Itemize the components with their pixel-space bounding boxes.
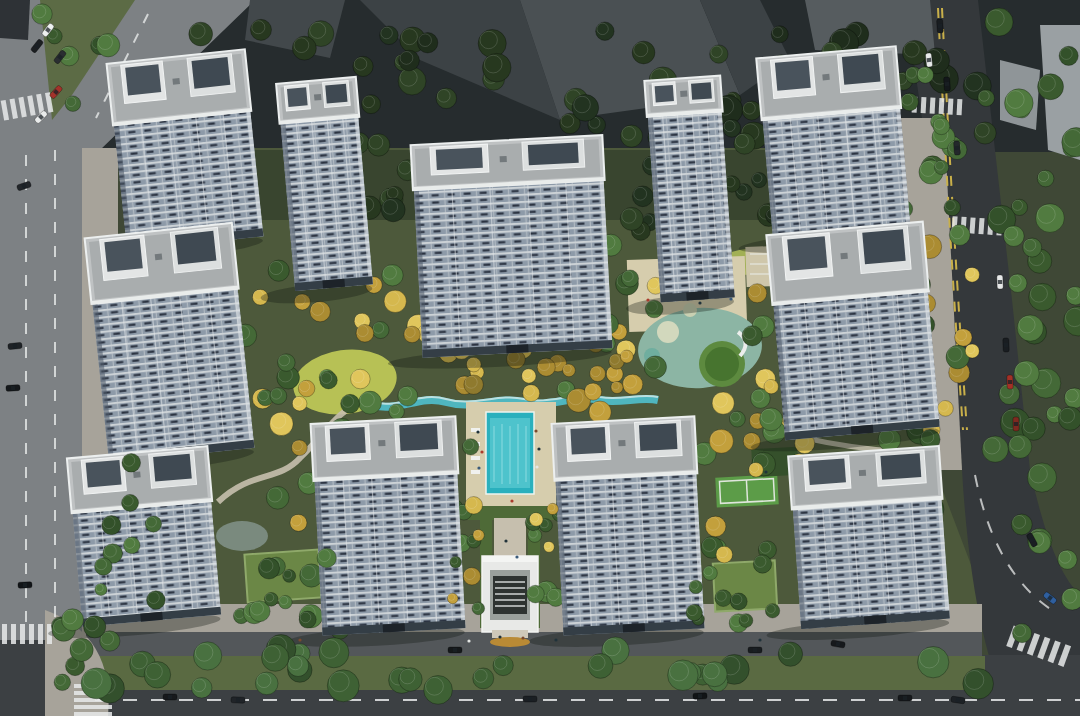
tree-crown-highlight: [634, 43, 648, 57]
tree-crown-highlight: [760, 542, 771, 553]
tree-crown-highlight: [528, 586, 539, 597]
car-windshield: [13, 344, 17, 349]
person-dot: [646, 298, 649, 301]
car: [1007, 375, 1013, 389]
tree-crown-highlight: [381, 27, 393, 39]
tree-crown-highlight: [648, 278, 658, 288]
roof-unit-west-glass: [655, 85, 674, 102]
car: [937, 19, 944, 33]
tower-facade: [92, 287, 254, 463]
tree-crown-highlight: [146, 663, 162, 679]
tree-crown-highlight: [622, 126, 636, 140]
tree-crown-highlight: [258, 391, 268, 401]
tree-crown-highlight: [750, 463, 759, 472]
roof-unit-east-glass: [880, 453, 921, 480]
car-windshield: [998, 280, 1003, 284]
tree-crown-highlight: [265, 593, 273, 601]
tree-crown-highlight: [310, 22, 326, 38]
tree-crown-highlight: [634, 187, 647, 200]
pool-lounger-4: [471, 470, 480, 474]
tree-crown-highlight: [1037, 206, 1055, 224]
car: [8, 342, 23, 349]
tree-crown-highlight: [755, 556, 766, 567]
tree-crown-highlight: [622, 209, 636, 223]
roof-unit-east-glass: [399, 423, 438, 451]
car: [6, 385, 20, 392]
tower-facade: [773, 289, 939, 440]
car-windshield: [1008, 380, 1013, 384]
tower-entrance: [623, 623, 645, 632]
tree-crown-highlight: [400, 51, 413, 64]
tree-crown-highlight: [687, 605, 697, 615]
tree-crown-highlight: [464, 569, 475, 580]
tree-crown-highlight: [257, 674, 271, 688]
tree-crown-highlight: [387, 187, 398, 198]
tree-crown-highlight: [363, 96, 375, 108]
tree-crown-highlight: [1064, 129, 1080, 147]
tree-crown-highlight: [548, 589, 559, 600]
tree-crown-highlight: [717, 547, 727, 557]
tree-crown-highlight: [300, 612, 311, 623]
tree-crown-highlight: [96, 584, 103, 591]
tree-crown-highlight: [103, 517, 115, 529]
tree-crown-highlight: [1065, 308, 1080, 326]
tree-crown-highlight: [294, 38, 309, 53]
tree-crown-highlight: [251, 602, 264, 615]
tree-crown-highlight: [548, 504, 555, 511]
tree-crown-highlight: [280, 596, 288, 604]
tree-crown-highlight: [293, 397, 302, 406]
tree-crown-highlight: [956, 330, 967, 341]
tree-crown-highlight: [71, 640, 85, 654]
tree-crown-highlight: [544, 542, 551, 549]
tree-crown-highlight: [342, 396, 354, 408]
tree-crown-highlight: [260, 559, 273, 572]
tree-crown-highlight: [301, 565, 315, 579]
tree-crown-highlight: [714, 394, 728, 408]
tree-crown-highlight: [597, 23, 608, 34]
roof-vent: [822, 74, 829, 81]
tree-crown-highlight: [1048, 407, 1058, 417]
tree-crown-highlight: [646, 357, 660, 371]
car: [523, 696, 537, 702]
tree-crown-highlight: [466, 498, 477, 509]
tree-crown-highlight: [574, 96, 591, 113]
tower-entrance: [686, 291, 709, 301]
car-windshield: [1014, 422, 1018, 426]
roof-vent: [618, 440, 625, 446]
tree-crown-highlight: [464, 440, 474, 450]
tree-crown-highlight: [975, 123, 989, 137]
car: [898, 695, 912, 701]
tree-crown-highlight: [352, 371, 364, 383]
tree-crown-highlight: [1066, 389, 1079, 402]
tree-crown-highlight: [735, 134, 748, 147]
tree-crown-highlight: [590, 402, 604, 416]
roof-unit-east-glass: [153, 454, 192, 482]
crosswalk-stripe: [11, 624, 16, 644]
tree-crown-highlight: [357, 326, 368, 337]
car-windshield: [528, 697, 532, 701]
roof-unit-east-glass: [192, 57, 231, 89]
tree-crown-highlight: [966, 268, 975, 277]
tree-crown-highlight: [494, 657, 507, 670]
tree-crown-highlight: [1038, 171, 1048, 181]
roof-unit-east-glass: [175, 231, 216, 265]
tree-crown-highlight: [354, 58, 367, 71]
tree-crown-highlight: [902, 94, 913, 105]
tree-crown-highlight: [123, 455, 135, 467]
tree-crown-highlight: [1039, 75, 1055, 91]
tree-crown-highlight: [373, 323, 384, 334]
tree-crown-highlight: [289, 657, 302, 670]
car-windshield: [955, 146, 960, 150]
roof-unit-west-glass: [787, 236, 827, 271]
tree-crown-highlight: [321, 373, 332, 384]
tree-crown-highlight: [989, 207, 1007, 225]
tree-crown-highlight: [690, 581, 698, 589]
car-windshield: [453, 648, 457, 652]
roof-unit-west-glass: [808, 459, 846, 485]
car: [748, 647, 762, 653]
tree-crown-highlight: [33, 5, 46, 18]
person-dot: [476, 430, 479, 433]
roof-unit-east-glass: [842, 54, 881, 85]
tower-facade: [762, 106, 910, 242]
car: [944, 77, 951, 91]
car-windshield: [753, 648, 757, 652]
car-windshield: [836, 641, 841, 646]
tree-crown-highlight: [1060, 48, 1072, 60]
crosswalk-stripe: [74, 705, 112, 709]
tree-crown-highlight: [451, 557, 458, 564]
person-dot: [510, 499, 513, 502]
tree-crown-highlight: [1029, 465, 1047, 483]
tree-crown-highlight: [621, 351, 629, 359]
tree-crown-highlight: [98, 35, 112, 49]
tree-crown-highlight: [524, 386, 535, 397]
tree-crown-highlight: [252, 21, 265, 34]
person-dot: [480, 450, 483, 453]
tree-crown-highlight: [234, 609, 244, 619]
tree-crown-highlight: [590, 655, 605, 670]
tree-crown-highlight: [473, 603, 481, 611]
tree-crown-highlight: [148, 592, 160, 604]
tree-crown-highlight: [939, 402, 949, 412]
car-windshield: [945, 82, 950, 86]
tree-crown-highlight: [1006, 91, 1024, 109]
car: [693, 693, 707, 699]
tree-crown-highlight: [400, 69, 417, 86]
tree-crown-highlight: [945, 200, 955, 210]
roof-unit-east-glass: [691, 82, 712, 100]
tree-crown-highlight: [704, 567, 713, 576]
person-dot: [764, 470, 767, 473]
tree-crown-highlight: [948, 347, 963, 362]
roof-unit-east-glass: [862, 229, 905, 264]
tree-crown-highlight: [624, 376, 637, 389]
tree-crown-highlight: [269, 261, 282, 274]
car-windshield: [956, 698, 961, 703]
car: [954, 141, 961, 155]
tower-entrance: [506, 344, 528, 353]
tree-crown-highlight: [965, 670, 984, 689]
tree-crown-highlight: [383, 266, 396, 279]
tree-crown-highlight: [55, 675, 65, 685]
tree-crown-highlight: [1060, 408, 1075, 423]
tree-crown-highlight: [279, 355, 290, 366]
tree-crown-highlight: [1030, 285, 1047, 302]
person-dot: [467, 639, 470, 642]
roof-vent: [500, 156, 507, 162]
tree-crown-highlight: [979, 91, 989, 101]
tree-crown-highlight: [743, 327, 756, 340]
tower-facade: [314, 471, 465, 635]
tree-crown-highlight: [1014, 625, 1026, 637]
person-dot: [498, 635, 501, 638]
tree-crown-highlight: [724, 121, 735, 132]
tree-crown-highlight: [104, 545, 116, 557]
tree-crown-highlight: [146, 517, 156, 527]
tree-crown-highlight: [766, 605, 775, 614]
tree-crown-highlight: [293, 441, 303, 451]
roof-unit-east-glass: [528, 142, 579, 165]
tree-crown-highlight: [474, 669, 487, 682]
tree-crown-highlight: [749, 285, 761, 297]
tree-crown-highlight: [670, 662, 689, 681]
pond: [216, 521, 268, 551]
tree-crown-highlight: [63, 610, 77, 624]
tree-crown-highlight: [1024, 239, 1036, 251]
person-dot: [758, 638, 761, 641]
person-dot: [537, 447, 540, 450]
tree-crown-highlight: [1010, 275, 1021, 286]
person-dot: [554, 638, 557, 641]
crosswalk-stripe: [29, 624, 34, 644]
roof-vent: [859, 470, 866, 476]
tree-crown-highlight: [744, 434, 755, 445]
tree-crown-highlight: [268, 488, 282, 502]
tree-crown-highlight: [951, 226, 964, 239]
tree-crown-highlight: [195, 644, 213, 662]
tree-crown-highlight: [1059, 551, 1071, 563]
tree-crown-highlight: [568, 390, 583, 405]
tree-crown-highlight: [193, 679, 206, 692]
car-windshield: [938, 24, 943, 28]
tree-crown-highlight: [610, 355, 620, 365]
tree-crown-highlight: [965, 74, 982, 91]
roof-vent: [680, 91, 687, 97]
gate-top-slab: [482, 556, 538, 562]
tree-crown-highlight: [329, 672, 349, 692]
tree-crown-highlight: [612, 382, 620, 390]
tree-crown-highlight: [419, 34, 432, 47]
roof-vent: [133, 471, 140, 478]
tree-crown-highlight: [934, 119, 944, 129]
roof-unit-west-glass: [775, 60, 811, 91]
tree-crown-highlight: [765, 380, 774, 389]
tree-crown-highlight: [780, 644, 795, 659]
tree-crown-highlight: [987, 10, 1004, 27]
car-windshield: [927, 58, 932, 62]
tree-crown-highlight: [920, 648, 939, 667]
roof-vent: [314, 94, 321, 101]
tower-facade: [414, 178, 613, 358]
crosswalk-stripe: [921, 97, 927, 113]
tree-crown-highlight: [591, 367, 601, 377]
car-windshield: [698, 694, 702, 699]
tree-crown-highlight: [355, 314, 365, 324]
tree-crown-highlight: [437, 89, 450, 102]
roof-unit-east-glass: [639, 423, 677, 451]
tree-crown-highlight: [731, 594, 741, 604]
car: [925, 53, 932, 68]
roof-vent: [172, 78, 180, 85]
aerial-render-canvas: [0, 0, 1080, 716]
tree-crown-highlight: [480, 31, 497, 48]
crosswalk-stripe: [948, 98, 954, 114]
person-dot: [298, 638, 301, 641]
tree-crown-highlight: [1067, 288, 1078, 299]
tree-crown-highlight: [465, 376, 477, 388]
roof-vent: [840, 253, 847, 260]
scene-svg: [0, 0, 1080, 716]
car: [231, 697, 245, 703]
tower-entrance: [383, 623, 405, 632]
roof-unit-west-glass: [125, 64, 161, 95]
car-windshield: [11, 386, 15, 391]
person-dot: [698, 301, 701, 304]
tree-crown-highlight: [704, 663, 720, 679]
tree-crown-highlight: [586, 384, 597, 395]
tower-facade: [555, 471, 704, 635]
roof-vent: [155, 253, 163, 260]
tree-crown-highlight: [1016, 362, 1032, 378]
crosswalk-stripe: [38, 624, 43, 644]
tree-crown-highlight: [1012, 200, 1022, 210]
tree-crown-highlight: [399, 387, 411, 399]
tree-crown-highlight: [448, 594, 455, 601]
tree-crown-highlight: [623, 271, 634, 282]
tree-crown-highlight: [740, 615, 749, 624]
roof-unit-west-glass: [330, 427, 366, 454]
tree-crown-highlight: [1023, 419, 1037, 433]
tree-crown-highlight: [918, 68, 928, 78]
tree-crown-highlight: [400, 669, 415, 684]
tree-crown-highlight: [1005, 227, 1018, 240]
roof-unit-west-glass: [86, 460, 122, 488]
tree-crown-highlight: [299, 474, 313, 488]
tree-crown-highlight: [558, 382, 569, 393]
tree-crown-highlight: [474, 530, 481, 537]
tree-crown-highlight: [386, 292, 400, 306]
tree-crown-highlight: [523, 370, 532, 379]
person-dot: [729, 297, 732, 300]
tree-crown-highlight: [284, 570, 292, 578]
tree-crown-highlight: [1010, 436, 1025, 451]
sports-court: [715, 474, 778, 507]
tree-crown-highlight: [743, 102, 755, 114]
tree-crown-highlight: [125, 538, 135, 548]
car: [18, 582, 32, 588]
tower-facade: [793, 497, 950, 629]
tree-crown-highlight: [530, 514, 538, 522]
tree-crown-highlight: [752, 390, 764, 402]
roof-unit-west-glass: [436, 147, 483, 170]
tree-crown-highlight: [753, 174, 762, 183]
car-windshield: [23, 583, 27, 588]
tree-crown-highlight: [131, 653, 147, 669]
tree-crown-highlight: [904, 42, 919, 57]
tree-crown-highlight: [561, 115, 574, 128]
car-windshield: [903, 696, 907, 700]
tree-crown-highlight: [401, 29, 417, 45]
crosswalk-stripe: [20, 624, 25, 644]
tree-crown-highlight: [966, 345, 975, 354]
tree-crown-highlight: [935, 161, 944, 170]
playground-pad-1: [657, 321, 679, 343]
car: [163, 694, 177, 700]
tree-crown-highlight: [123, 496, 134, 507]
tree-crown-highlight: [85, 617, 99, 631]
tree-crown-highlight: [920, 161, 935, 176]
car-windshield: [1004, 343, 1009, 347]
tree-crown-highlight: [563, 365, 571, 373]
tree-crown-highlight: [318, 550, 330, 562]
roof-vent: [378, 440, 385, 446]
crosswalk-stripe: [2, 624, 7, 644]
tree-crown-highlight: [390, 405, 400, 415]
tree-crown-highlight: [711, 431, 726, 446]
street-verge: [95, 656, 985, 690]
tree-crown-highlight: [190, 24, 205, 39]
tree-crown-highlight: [321, 640, 340, 659]
car: [1013, 417, 1019, 431]
tree-crown-highlight: [984, 438, 1000, 454]
tree-crown-highlight: [761, 409, 775, 423]
car-windshield: [236, 698, 240, 703]
pool-lounger-3: [471, 456, 480, 460]
person-dot: [504, 539, 507, 542]
tree-crown-highlight: [83, 670, 102, 689]
tree-crown-highlight: [1063, 589, 1077, 603]
tree-crown-highlight: [66, 97, 76, 107]
tree-crown-highlight: [484, 55, 502, 73]
tree-crown-highlight: [271, 414, 286, 429]
tree-crown-highlight: [311, 303, 324, 316]
person-dot: [477, 466, 480, 469]
car: [997, 275, 1003, 289]
crosswalk-stripe: [930, 98, 936, 114]
context-building-far-left: [0, 0, 30, 40]
roof-unit-west-glass: [287, 87, 308, 107]
tree-crown-highlight: [707, 517, 720, 530]
tree-crown-highlight: [730, 412, 740, 422]
car-windshield: [168, 695, 172, 699]
person-dot: [534, 429, 537, 432]
tree-crown-highlight: [772, 27, 783, 38]
tree-crown-highlight: [398, 161, 411, 174]
tree-crown-highlight: [711, 46, 722, 57]
car: [448, 647, 462, 653]
tree-crown-highlight: [291, 515, 302, 526]
roof-unit-east-glass: [325, 84, 347, 104]
tower-entrance: [864, 615, 887, 625]
crosswalk-stripe: [957, 99, 963, 115]
tree-crown-highlight: [906, 68, 916, 78]
tree-crown-highlight: [426, 677, 444, 695]
tree-crown-highlight: [703, 538, 717, 552]
